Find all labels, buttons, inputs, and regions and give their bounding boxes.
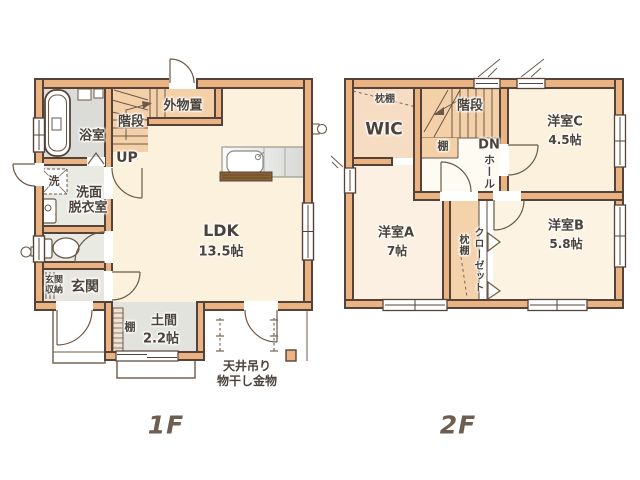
label-shelf-2f: 棚 [438, 141, 449, 152]
label-shelf-1f: 棚 [125, 322, 136, 333]
label-laundry-hw-2: 物干し金物 [217, 375, 277, 387]
label-wic: WIC [365, 122, 403, 139]
top-awning-window-2 [517, 59, 545, 89]
label-entrance-storage-2: 収納 [45, 287, 63, 296]
floor-plan-canvas: 浴室 階段 外物置 UP 洗 洗面 脱衣室 玄関 収納 玄関 棚 土間 2.2帖… [0, 0, 640, 480]
top-awning-window-1 [474, 59, 500, 89]
bath-counter-icon [78, 89, 103, 100]
label-room-a-size: 7帖 [387, 245, 407, 257]
floor1-label: 1F [148, 411, 184, 440]
label-dn: DN [478, 139, 500, 152]
label-laundry-hw-1: 天井吊り [223, 360, 271, 372]
room-b-window [615, 205, 626, 267]
label-ldk: LDK [203, 223, 239, 239]
doma-sliding-door [116, 351, 178, 361]
label-doma-size: 2.2帖 [143, 333, 179, 346]
floor-plan-drawing [0, 0, 640, 480]
label-room-c-size: 4.5帖 [548, 134, 581, 146]
label-room-b: 洋室B [548, 220, 584, 233]
label-washer: 洗 [49, 176, 60, 187]
label-entrance-storage-1: 玄関 [45, 277, 63, 286]
label-entrance: 玄関 [71, 280, 99, 294]
label-outdoor-storage: 外物置 [163, 100, 202, 113]
terrace-post [286, 310, 307, 361]
label-hall: ホール [484, 154, 495, 190]
label-bath: 浴室 [79, 130, 105, 143]
label-doma: 土間 [151, 315, 177, 328]
kitchen-vent-icon [312, 124, 327, 134]
room-b-bottom-window [528, 300, 587, 311]
kitchen-sink-icon [227, 151, 264, 173]
label-room-b-size: 5.8帖 [549, 238, 582, 250]
toilet-icon [41, 238, 79, 258]
label-washroom-2: 脱衣室 [68, 202, 107, 215]
label-closet-pillow-shelf: 枕棚 [457, 234, 467, 256]
laundry-hardware-icon [216, 318, 278, 353]
toilet-window [34, 236, 45, 262]
label-stairs-2f: 階段 [457, 100, 483, 113]
bath-window [34, 118, 45, 152]
storage-entry-door [169, 59, 196, 89]
doma-step [117, 360, 195, 378]
kitchen-counter [220, 147, 304, 181]
room-c-window [615, 115, 626, 167]
bathtub-icon [45, 90, 70, 156]
doma-shelf-icon [113, 308, 123, 352]
label-ldk-size: 13.5帖 [198, 246, 243, 259]
floor2-label: 2F [440, 411, 476, 440]
ldk-window [303, 203, 314, 260]
label-closet: クローゼット [472, 227, 482, 293]
back-door [13, 163, 44, 186]
label-wic-pillow-shelf: 枕棚 [375, 95, 395, 105]
label-washroom-1: 洗面 [76, 187, 102, 200]
label-room-a: 洋室A [378, 227, 414, 240]
label-room-c: 洋室C [547, 116, 583, 129]
room-a-bottom-window [383, 300, 447, 311]
label-stairs-1f: 階段 [118, 116, 144, 129]
label-up: UP [116, 151, 138, 165]
